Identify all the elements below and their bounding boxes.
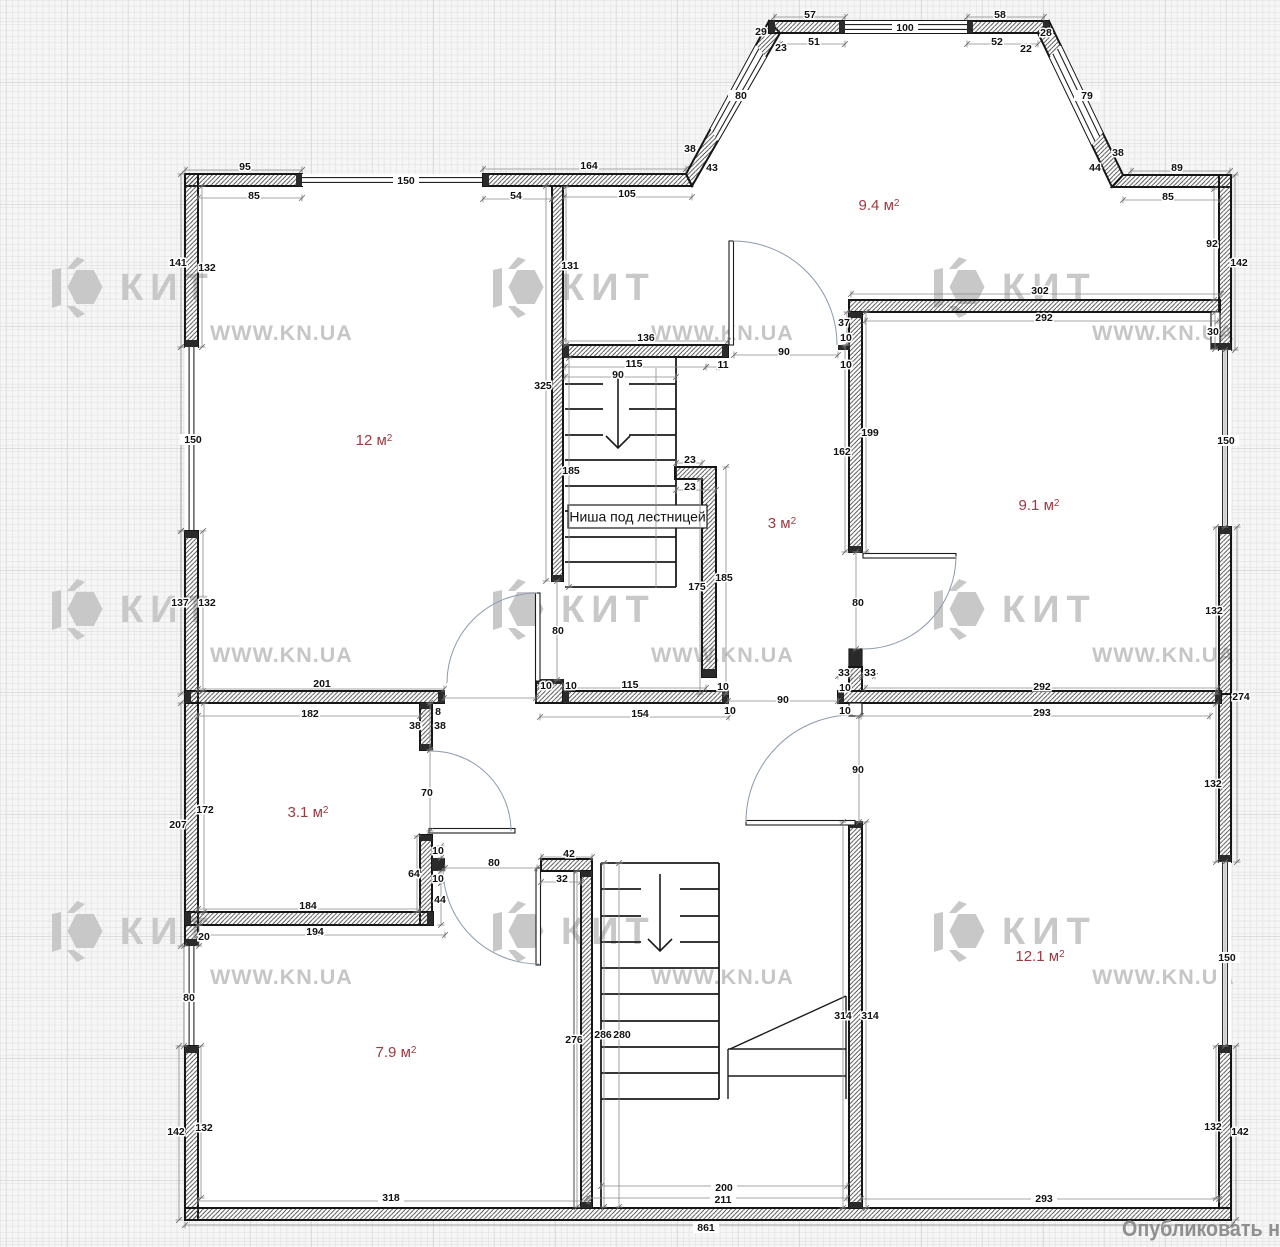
svg-text:9.1 м2: 9.1 м2 [1019,497,1060,514]
svg-text:37: 37 [838,317,850,329]
svg-text:314: 314 [834,1010,852,1022]
svg-text:28: 28 [1040,27,1052,39]
svg-text:54: 54 [510,190,522,202]
svg-text:38: 38 [1112,147,1124,159]
svg-text:WWW.KN.UA: WWW.KN.UA [210,965,353,989]
svg-text:10: 10 [840,359,852,371]
svg-text:142: 142 [1230,257,1248,269]
svg-text:136: 136 [637,332,655,344]
svg-text:38: 38 [684,143,696,155]
svg-text:292: 292 [1033,681,1051,693]
svg-text:142: 142 [167,1126,185,1138]
svg-text:WWW.KN.UA: WWW.KN.UA [210,321,353,345]
svg-text:292: 292 [1035,312,1053,324]
svg-text:38: 38 [434,720,446,732]
svg-text:142: 142 [1231,1126,1249,1138]
svg-text:29: 29 [755,26,767,38]
svg-text:318: 318 [382,1192,400,1204]
svg-text:90: 90 [612,369,624,381]
svg-text:150: 150 [1218,952,1236,964]
svg-text:10: 10 [839,705,851,717]
svg-text:95: 95 [239,161,251,173]
svg-text:100: 100 [896,22,914,34]
svg-text:211: 211 [715,1194,732,1206]
svg-text:199: 199 [861,427,879,439]
svg-text:44: 44 [1089,162,1101,174]
svg-text:КИТ: КИТ [561,267,656,309]
svg-text:131: 131 [561,260,579,272]
svg-text:Опубликовать н: Опубликовать н [1122,1216,1280,1241]
svg-text:132: 132 [195,1122,213,1134]
svg-text:7.9 м2: 7.9 м2 [376,1044,417,1061]
svg-text:141: 141 [169,257,187,269]
svg-text:293: 293 [1035,1193,1053,1205]
svg-text:79: 79 [1081,90,1093,102]
svg-text:32: 32 [556,873,568,885]
svg-text:90: 90 [778,346,790,358]
svg-text:150: 150 [397,175,415,187]
svg-text:КИТ: КИТ [120,589,215,631]
svg-text:10: 10 [840,332,852,344]
svg-text:85: 85 [248,190,260,202]
svg-text:WWW.KN.UA: WWW.KN.UA [1092,965,1235,989]
svg-text:861: 861 [697,1222,715,1234]
svg-text:10: 10 [839,682,851,694]
svg-text:КИТ: КИТ [561,589,656,631]
svg-text:90: 90 [852,764,864,776]
svg-text:44: 44 [434,894,446,906]
svg-text:184: 184 [299,900,317,912]
svg-text:42: 42 [563,848,575,860]
svg-text:43: 43 [706,162,718,174]
svg-text:51: 51 [808,36,820,48]
svg-text:302: 302 [1031,285,1049,297]
svg-text:КИТ: КИТ [1002,911,1097,953]
svg-text:185: 185 [715,572,733,584]
svg-text:182: 182 [301,708,319,720]
svg-text:10: 10 [724,705,736,717]
svg-text:201: 201 [313,678,331,690]
svg-text:200: 200 [715,1182,733,1194]
svg-text:132: 132 [1205,605,1223,617]
svg-text:WWW.KN.UA: WWW.KN.UA [1092,643,1235,667]
svg-text:23: 23 [684,481,696,493]
svg-text:64: 64 [408,868,420,880]
svg-text:207: 207 [169,819,187,831]
svg-text:90: 90 [777,694,789,706]
svg-text:162: 162 [833,446,851,458]
svg-text:23: 23 [775,42,787,54]
svg-text:10: 10 [432,845,444,857]
svg-text:115: 115 [626,358,643,370]
svg-text:175: 175 [688,581,706,593]
svg-text:274: 274 [1232,691,1250,703]
svg-text:80: 80 [183,992,195,1004]
svg-text:286: 286 [594,1029,612,1041]
svg-text:80: 80 [852,597,864,609]
svg-text:30: 30 [1207,326,1219,338]
svg-text:132: 132 [198,262,216,274]
svg-text:22: 22 [1020,43,1032,55]
svg-text:314: 314 [861,1010,879,1022]
svg-text:12.1 м2: 12.1 м2 [1015,948,1065,965]
svg-text:92: 92 [1206,238,1218,250]
svg-text:293: 293 [1033,707,1051,719]
svg-text:154: 154 [631,708,649,720]
svg-text:137: 137 [171,597,189,609]
svg-text:150: 150 [1217,435,1235,447]
svg-text:52: 52 [991,36,1003,48]
svg-text:10: 10 [432,873,444,885]
svg-text:КИТ: КИТ [1002,589,1097,631]
svg-text:80: 80 [735,90,747,102]
svg-text:10: 10 [540,680,552,692]
svg-text:132: 132 [198,597,216,609]
svg-text:57: 57 [804,9,816,21]
svg-text:105: 105 [618,188,636,200]
svg-text:20: 20 [198,931,210,943]
svg-text:70: 70 [421,787,433,799]
svg-text:280: 280 [613,1029,631,1041]
svg-text:115: 115 [622,679,639,691]
svg-text:33: 33 [864,667,876,679]
svg-text:89: 89 [1171,162,1183,174]
svg-text:КИТ: КИТ [561,911,656,953]
svg-text:132: 132 [1204,778,1222,790]
svg-text:325: 325 [534,380,552,392]
svg-text:276: 276 [565,1034,583,1046]
svg-text:38: 38 [409,720,421,732]
svg-text:11: 11 [717,359,728,371]
svg-text:172: 172 [196,804,214,816]
svg-text:85: 85 [1162,191,1174,203]
svg-text:9.4 м2: 9.4 м2 [859,197,900,214]
svg-text:WWW.KN.UA: WWW.KN.UA [210,643,353,667]
svg-text:Ниша под лестницей: Ниша под лестницей [569,509,705,525]
svg-text:58: 58 [994,9,1006,21]
svg-text:80: 80 [488,857,500,869]
svg-text:80: 80 [552,625,564,637]
svg-text:132: 132 [1204,1121,1222,1133]
svg-text:185: 185 [562,465,580,477]
svg-text:164: 164 [580,160,598,172]
svg-text:8: 8 [435,706,441,718]
svg-text:23: 23 [684,454,696,466]
svg-text:33: 33 [838,667,850,679]
svg-text:WWW.KN.UA: WWW.KN.UA [651,643,794,667]
svg-text:194: 194 [306,926,324,938]
svg-text:10: 10 [565,680,577,692]
svg-text:150: 150 [184,434,202,446]
svg-text:10: 10 [717,681,729,693]
svg-text:3.1 м2: 3.1 м2 [288,804,329,821]
